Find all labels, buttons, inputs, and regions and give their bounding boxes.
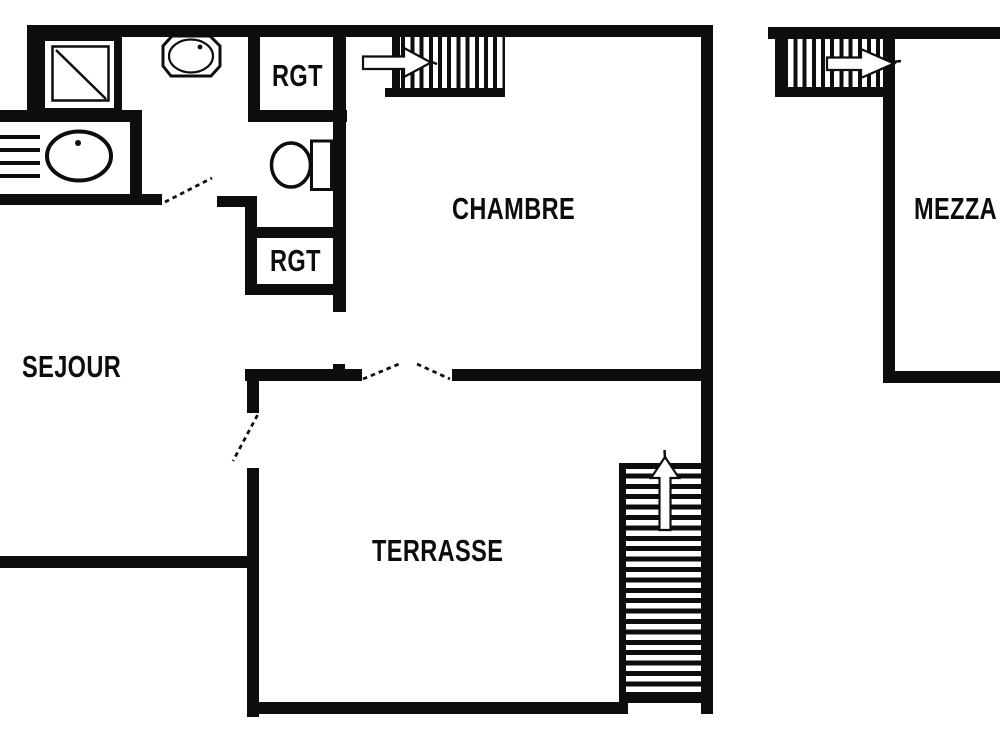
room-label-rgt-top: RGT [272, 60, 323, 91]
room-label-chambre: CHAMBRE [452, 193, 575, 224]
washbasin-icon [163, 36, 220, 76]
chambre-stairs-arrow-right-icon [363, 48, 437, 77]
mezzanine-stairs-arrow-right-icon [827, 49, 901, 78]
room-label-mezzanine: MEZZA [914, 193, 997, 224]
double-door-left-leaf-icon [363, 364, 399, 379]
room-label-rgt-middle: RGT [270, 245, 321, 276]
room-label-terrasse: TERRASSE [372, 535, 503, 566]
kitchen-sink-with-drainer-icon [0, 132, 111, 181]
terrasse-stairs-arrow-up-icon [651, 450, 679, 530]
sejour-terrasse-door-swing-icon [233, 415, 258, 461]
shower-stall-icon [41, 37, 118, 112]
room-label-sejour: SEJOUR [22, 351, 121, 382]
fixtures-layer [0, 0, 1000, 750]
double-door-right-leaf-icon [417, 364, 450, 379]
floor-plan: RGT CHAMBRE MEZZA RGT SEJOUR TERRASSE [0, 0, 1000, 750]
toilet-icon [272, 141, 332, 190]
bathroom-door-swing-icon [165, 178, 212, 202]
